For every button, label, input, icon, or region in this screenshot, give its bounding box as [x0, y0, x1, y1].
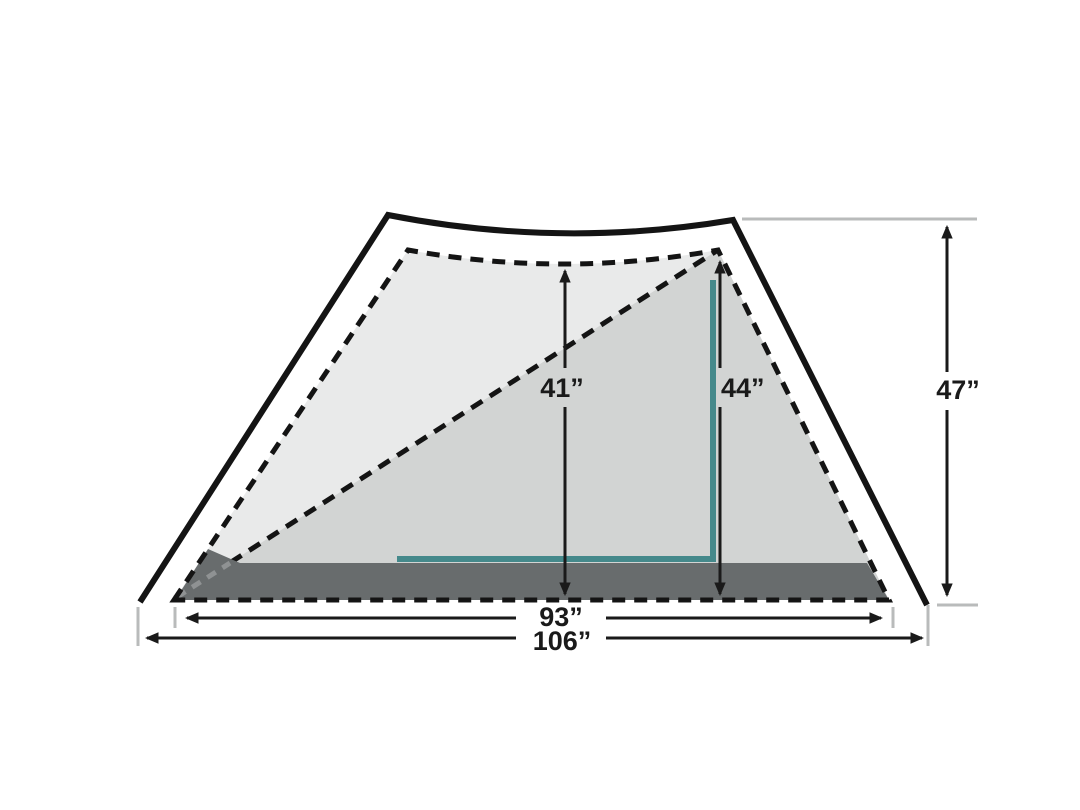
dimension-106-label: 106”: [533, 626, 592, 656]
dimension-exterior-width: 106”: [147, 626, 922, 656]
dimension-exterior-height: 47”: [936, 227, 980, 595]
tent-dimension-diagram: 41” 44” 47” 93” 106”: [0, 0, 1080, 810]
dimension-47-label: 47”: [936, 375, 980, 405]
tent-diagram-canvas: 41” 44” 47” 93” 106”: [0, 0, 1080, 810]
dimension-41-label: 41”: [540, 373, 584, 403]
dimension-44-label: 44”: [721, 373, 765, 403]
